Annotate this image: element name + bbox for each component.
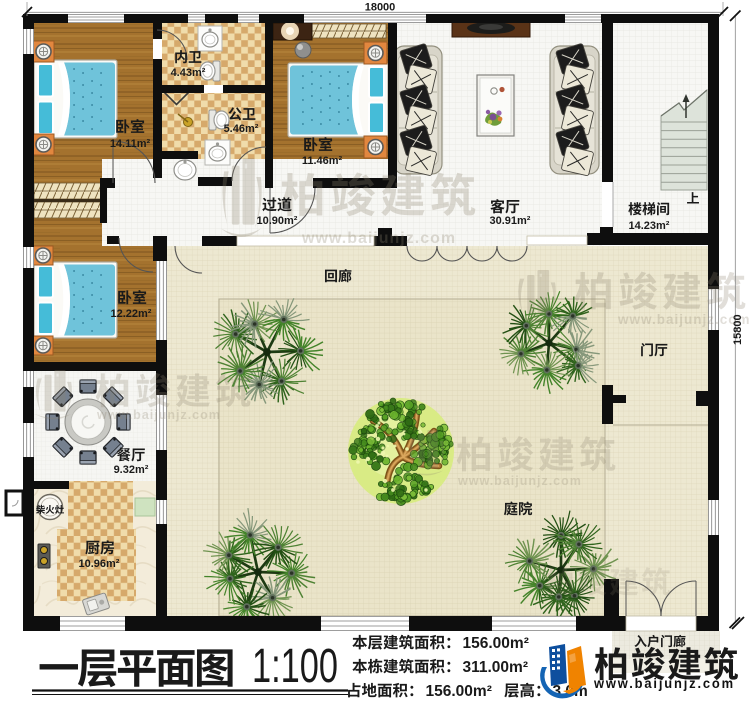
svg-text:12.22m²: 12.22m² <box>111 308 152 320</box>
svg-text:4.43m²: 4.43m² <box>171 67 206 79</box>
svg-text:www.baijunjz.com: www.baijunjz.com <box>617 312 750 327</box>
svg-text:www.baijunjz.com: www.baijunjz.com <box>593 675 735 691</box>
svg-text:18000: 18000 <box>365 2 396 14</box>
svg-text:14.23m²: 14.23m² <box>629 220 670 232</box>
svg-text:1:100: 1:100 <box>252 640 338 693</box>
svg-text:14.11m²: 14.11m² <box>110 138 151 150</box>
svg-text:156.00m²: 156.00m² <box>463 635 529 652</box>
svg-text:www.baijunjz.com: www.baijunjz.com <box>457 474 582 488</box>
svg-text:10.96m²: 10.96m² <box>79 558 120 570</box>
svg-text:15800: 15800 <box>732 314 744 345</box>
svg-text:www.baijunjz.com: www.baijunjz.com <box>301 230 456 247</box>
svg-text:11.46m²: 11.46m² <box>302 155 343 167</box>
svg-text:www.baijunjz.com: www.baijunjz.com <box>96 408 221 422</box>
svg-text:311.00m²: 311.00m² <box>463 659 529 676</box>
svg-text:30.91m²: 30.91m² <box>490 215 531 227</box>
svg-text:156.00m²: 156.00m² <box>426 683 492 700</box>
svg-text:5.46m²: 5.46m² <box>224 123 259 135</box>
svg-text:10.90m²: 10.90m² <box>257 215 298 227</box>
svg-text:9.32m²: 9.32m² <box>114 464 149 476</box>
